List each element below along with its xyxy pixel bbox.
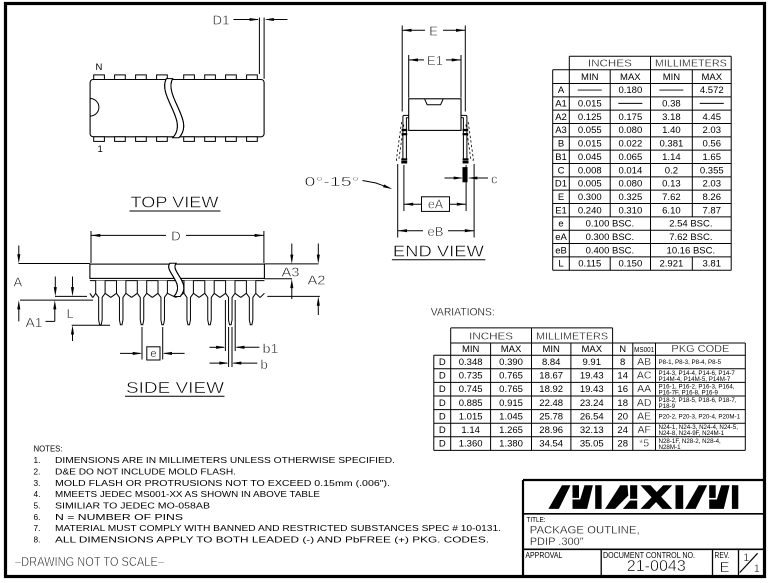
svg-text:0.045: 0.045 xyxy=(578,152,602,163)
svg-text:2.921: 2.921 xyxy=(660,259,684,270)
svg-text:DIMENSIONS ARE IN MILLIMETERS: DIMENSIONS ARE IN MILLIMETERS UNLESS OTH… xyxy=(55,455,395,465)
svg-text:0.300 BSC.: 0.300 BSC. xyxy=(586,232,635,243)
svg-text:0.055: 0.055 xyxy=(578,125,602,136)
svg-text:0.400 BSC.: 0.400 BSC. xyxy=(586,245,635,256)
svg-text:AD: AD xyxy=(637,397,652,409)
svg-text:2.03: 2.03 xyxy=(703,179,722,190)
svg-text:e: e xyxy=(558,219,563,230)
svg-text:1.65: 1.65 xyxy=(703,152,722,163)
svg-text:A2: A2 xyxy=(308,273,326,288)
svg-text:SIDE VIEW: SIDE VIEW xyxy=(126,380,224,397)
svg-text:A3: A3 xyxy=(555,125,567,136)
svg-text:D: D xyxy=(171,229,180,244)
svg-text:END VIEW: END VIEW xyxy=(393,244,484,261)
svg-text:AF: AF xyxy=(637,424,650,436)
svg-text:eB: eB xyxy=(428,224,444,239)
svg-text:b1: b1 xyxy=(263,341,279,356)
svg-text:D1: D1 xyxy=(555,179,567,190)
svg-text:0.080: 0.080 xyxy=(618,125,642,136)
svg-text:0.765: 0.765 xyxy=(499,371,523,382)
svg-text:0.175: 0.175 xyxy=(618,112,642,123)
svg-text:0.745: 0.745 xyxy=(459,384,483,395)
svg-text:E: E xyxy=(558,192,564,203)
svg-text:0.915: 0.915 xyxy=(499,398,523,409)
svg-text:1.015: 1.015 xyxy=(459,411,483,422)
svg-text:6.10: 6.10 xyxy=(662,205,681,216)
svg-text:MIN: MIN xyxy=(462,344,480,355)
svg-text:0.240: 0.240 xyxy=(578,205,602,216)
svg-text:0.065: 0.065 xyxy=(618,152,642,163)
svg-text:INCHES: INCHES xyxy=(469,330,513,342)
svg-text:3.: 3. xyxy=(34,478,41,488)
svg-text:B1: B1 xyxy=(555,152,567,163)
svg-text:8.26: 8.26 xyxy=(703,192,722,203)
svg-text:0.150: 0.150 xyxy=(618,259,642,270)
svg-text:2.54 BSC.: 2.54 BSC. xyxy=(669,219,712,230)
svg-text:1: 1 xyxy=(754,563,760,575)
svg-text:D&E DO NOT INCLUDE MOLD FLASH.: D&E DO NOT INCLUDE MOLD FLASH. xyxy=(55,467,236,477)
svg-text:7.62 BSC.: 7.62 BSC. xyxy=(669,232,712,243)
svg-text:AC: AC xyxy=(637,370,652,382)
svg-text:TITLE:: TITLE: xyxy=(527,515,546,524)
svg-text:7.87: 7.87 xyxy=(703,205,722,216)
svg-text:10.16 BSC.: 10.16 BSC. xyxy=(667,245,716,256)
svg-text:0.080: 0.080 xyxy=(618,179,642,190)
svg-text:MILLIMETERS: MILLIMETERS xyxy=(655,58,727,70)
svg-text:PKG CODE: PKG CODE xyxy=(671,343,729,355)
svg-text:19.43: 19.43 xyxy=(580,371,604,382)
svg-text:0.125: 0.125 xyxy=(578,112,602,123)
svg-text:ALL DIMENSIONS APPLY TO BOTH L: ALL DIMENSIONS APPLY TO BOTH LEADED (-) … xyxy=(55,535,489,545)
svg-text:N28M-1: N28M-1 xyxy=(659,444,682,451)
svg-text:4.: 4. xyxy=(34,489,41,499)
svg-text:0.325: 0.325 xyxy=(618,192,642,203)
svg-text:0.381: 0.381 xyxy=(660,139,684,150)
svg-text:32.13: 32.13 xyxy=(580,425,604,436)
svg-text:MIN: MIN xyxy=(542,344,560,355)
svg-text:MATERIAL MUST COMPLY WITH BANN: MATERIAL MUST COMPLY WITH BANNED AND RES… xyxy=(55,523,501,533)
svg-text:0.765: 0.765 xyxy=(499,384,523,395)
svg-text:18: 18 xyxy=(617,398,628,409)
svg-text:28.96: 28.96 xyxy=(539,425,563,436)
svg-text:1: 1 xyxy=(743,552,749,564)
svg-text:D: D xyxy=(439,411,446,422)
svg-text:E1: E1 xyxy=(427,53,443,68)
svg-text:26.54: 26.54 xyxy=(580,411,604,422)
svg-text:E1: E1 xyxy=(555,205,567,216)
svg-text:MILLIMETERS: MILLIMETERS xyxy=(536,330,608,342)
svg-text:e: e xyxy=(150,348,156,360)
svg-text:SIMILIAR TO JEDEC MO-058AB: SIMILIAR TO JEDEC MO-058AB xyxy=(55,501,211,511)
svg-text:1.: 1. xyxy=(34,455,41,465)
svg-text:6.: 6. xyxy=(34,512,41,522)
svg-text:P18-9: P18-9 xyxy=(659,403,676,410)
svg-text:0.310: 0.310 xyxy=(618,205,642,216)
svg-text:A: A xyxy=(14,275,23,290)
svg-text:1.360: 1.360 xyxy=(459,439,483,450)
svg-text:N: N xyxy=(619,344,626,355)
svg-text:1.045: 1.045 xyxy=(499,411,523,422)
svg-text:MIN: MIN xyxy=(663,72,681,83)
svg-text:TOP VIEW: TOP VIEW xyxy=(131,195,219,212)
svg-text:b: b xyxy=(261,357,268,372)
svg-text:P14M-4, P14M-5, P14M-7: P14M-4, P14M-5, P14M-7 xyxy=(659,376,731,383)
svg-text:0.015: 0.015 xyxy=(578,139,602,150)
svg-text:4.572: 4.572 xyxy=(700,85,724,96)
svg-text:D: D xyxy=(439,398,446,409)
svg-text:16: 16 xyxy=(617,384,628,395)
svg-text:MAX: MAX xyxy=(501,344,522,355)
svg-text:INCHES: INCHES xyxy=(588,58,632,70)
svg-text:14: 14 xyxy=(617,371,628,382)
svg-text:L: L xyxy=(558,259,563,270)
svg-text:L: L xyxy=(67,306,74,321)
svg-text:A2: A2 xyxy=(555,112,567,123)
svg-text:19.43: 19.43 xyxy=(580,384,604,395)
svg-text:MIN: MIN xyxy=(581,72,599,83)
svg-text:APPROVAL: APPROVAL xyxy=(525,551,562,560)
svg-text:0.735: 0.735 xyxy=(459,371,483,382)
svg-text:D: D xyxy=(439,371,446,382)
svg-text:0.390: 0.390 xyxy=(499,357,523,368)
svg-text:0.008: 0.008 xyxy=(578,165,602,176)
svg-text:MAX: MAX xyxy=(620,72,641,83)
svg-text:A1: A1 xyxy=(555,99,567,110)
svg-text:35.05: 35.05 xyxy=(580,439,604,450)
svg-text:4.45: 4.45 xyxy=(703,112,722,123)
svg-text:22.48: 22.48 xyxy=(539,398,563,409)
svg-text:0.56: 0.56 xyxy=(703,139,722,150)
svg-text:28: 28 xyxy=(617,439,628,450)
svg-text:0.014: 0.014 xyxy=(618,165,642,176)
svg-text:D: D xyxy=(439,384,446,395)
svg-text:MAX: MAX xyxy=(701,72,722,83)
svg-text:0.022: 0.022 xyxy=(618,139,642,150)
svg-text:MMEETS JEDEC MS001-XX AS SHOWN: MMEETS JEDEC MS001-XX AS SHOWN IN ABOVE … xyxy=(55,489,321,499)
svg-text:A1: A1 xyxy=(26,315,43,330)
svg-text:0.300: 0.300 xyxy=(578,192,602,203)
svg-text:AE: AE xyxy=(637,410,651,422)
svg-text:E: E xyxy=(429,24,438,39)
svg-text:0.355: 0.355 xyxy=(700,165,724,176)
svg-text:MAX: MAX xyxy=(581,344,602,355)
svg-text:34.54: 34.54 xyxy=(539,439,563,450)
svg-text:N24-8, N24-9F, N24M-1: N24-8, N24-9F, N24M-1 xyxy=(659,430,725,437)
svg-text:21-0043: 21-0043 xyxy=(627,558,686,575)
svg-text:0.2: 0.2 xyxy=(665,165,678,176)
svg-text:B: B xyxy=(558,139,564,150)
svg-text:2.03: 2.03 xyxy=(703,125,722,136)
svg-text:18.67: 18.67 xyxy=(539,371,563,382)
svg-text:P16-7F, P16-8, P16-9: P16-7F, P16-8, P16-9 xyxy=(659,389,719,396)
svg-text:0.005: 0.005 xyxy=(578,179,602,190)
svg-text:*5: *5 xyxy=(639,438,649,450)
svg-text:9.91: 9.91 xyxy=(583,357,602,368)
svg-text:0.015: 0.015 xyxy=(578,99,602,110)
svg-text:P20-2, P20-3, P20-4, P20M-1: P20-2, P20-3, P20-4, P20M-1 xyxy=(659,414,741,421)
svg-text:0.885: 0.885 xyxy=(459,398,483,409)
svg-text:24: 24 xyxy=(617,425,628,436)
svg-text:AB: AB xyxy=(637,356,651,368)
svg-text:VARIATIONS:: VARIATIONS: xyxy=(431,307,495,319)
svg-text:A3: A3 xyxy=(282,264,300,279)
svg-text:A: A xyxy=(558,85,565,96)
svg-text:0.38: 0.38 xyxy=(662,99,681,110)
svg-text:0°-15°: 0°-15° xyxy=(305,174,360,189)
svg-text:eA: eA xyxy=(428,198,444,212)
svg-text:0.115: 0.115 xyxy=(578,259,601,270)
svg-text:0.180: 0.180 xyxy=(618,85,642,96)
svg-text:25.78: 25.78 xyxy=(539,411,563,422)
svg-text:C: C xyxy=(558,165,565,176)
svg-text:23.24: 23.24 xyxy=(580,398,604,409)
svg-text:D: D xyxy=(439,425,446,436)
svg-text:P8-1, P8-3, P8-4, P8-5: P8-1, P8-3, P8-4, P8-5 xyxy=(659,359,722,366)
svg-text:PACKAGE OUTLINE,: PACKAGE OUTLINE, xyxy=(530,524,640,536)
svg-text:7.62: 7.62 xyxy=(662,192,681,203)
svg-text:2.: 2. xyxy=(34,467,41,477)
svg-text:3.81: 3.81 xyxy=(703,259,722,270)
svg-text:3.18: 3.18 xyxy=(662,112,681,123)
svg-text:1.14: 1.14 xyxy=(461,425,480,436)
svg-text:MS001: MS001 xyxy=(634,347,654,354)
svg-text:AA: AA xyxy=(637,383,651,395)
svg-text:NOTES:: NOTES: xyxy=(34,444,63,454)
svg-text:eB: eB xyxy=(555,245,567,256)
svg-text:D: D xyxy=(439,357,446,368)
svg-text:1.40: 1.40 xyxy=(662,125,681,136)
svg-text:D: D xyxy=(439,439,446,450)
svg-text:N: N xyxy=(96,62,103,73)
svg-text:c: c xyxy=(491,172,498,187)
svg-text:D1: D1 xyxy=(213,13,230,28)
svg-text:MOLD FLASH OR PROTRUSIONS NOT: MOLD FLASH OR PROTRUSIONS NOT TO EXCEED … xyxy=(55,478,390,488)
svg-text:1: 1 xyxy=(98,144,103,155)
svg-text:7.: 7. xyxy=(34,523,41,533)
svg-text:8.84: 8.84 xyxy=(542,357,561,368)
svg-text:E: E xyxy=(720,559,730,576)
svg-text:1.14: 1.14 xyxy=(662,152,681,163)
svg-text:0.100 BSC.: 0.100 BSC. xyxy=(586,219,635,230)
svg-text:1.380: 1.380 xyxy=(499,439,523,450)
svg-text:5.: 5. xyxy=(34,501,41,511)
svg-text:18.92: 18.92 xyxy=(539,384,563,395)
svg-text:N = NUMBER OF PINS: N = NUMBER OF PINS xyxy=(55,512,184,522)
svg-text:20: 20 xyxy=(617,411,628,422)
svg-text:1.265: 1.265 xyxy=(499,425,523,436)
svg-text:8.: 8. xyxy=(34,535,41,545)
svg-text:PDIP .300″: PDIP .300″ xyxy=(530,536,584,548)
svg-text:0.13: 0.13 xyxy=(662,179,681,190)
svg-text:0.348: 0.348 xyxy=(459,357,483,368)
svg-text:eA: eA xyxy=(555,232,567,243)
svg-text:–DRAWING NOT TO SCALE–: –DRAWING NOT TO SCALE– xyxy=(15,555,164,569)
svg-text:8: 8 xyxy=(620,357,625,368)
